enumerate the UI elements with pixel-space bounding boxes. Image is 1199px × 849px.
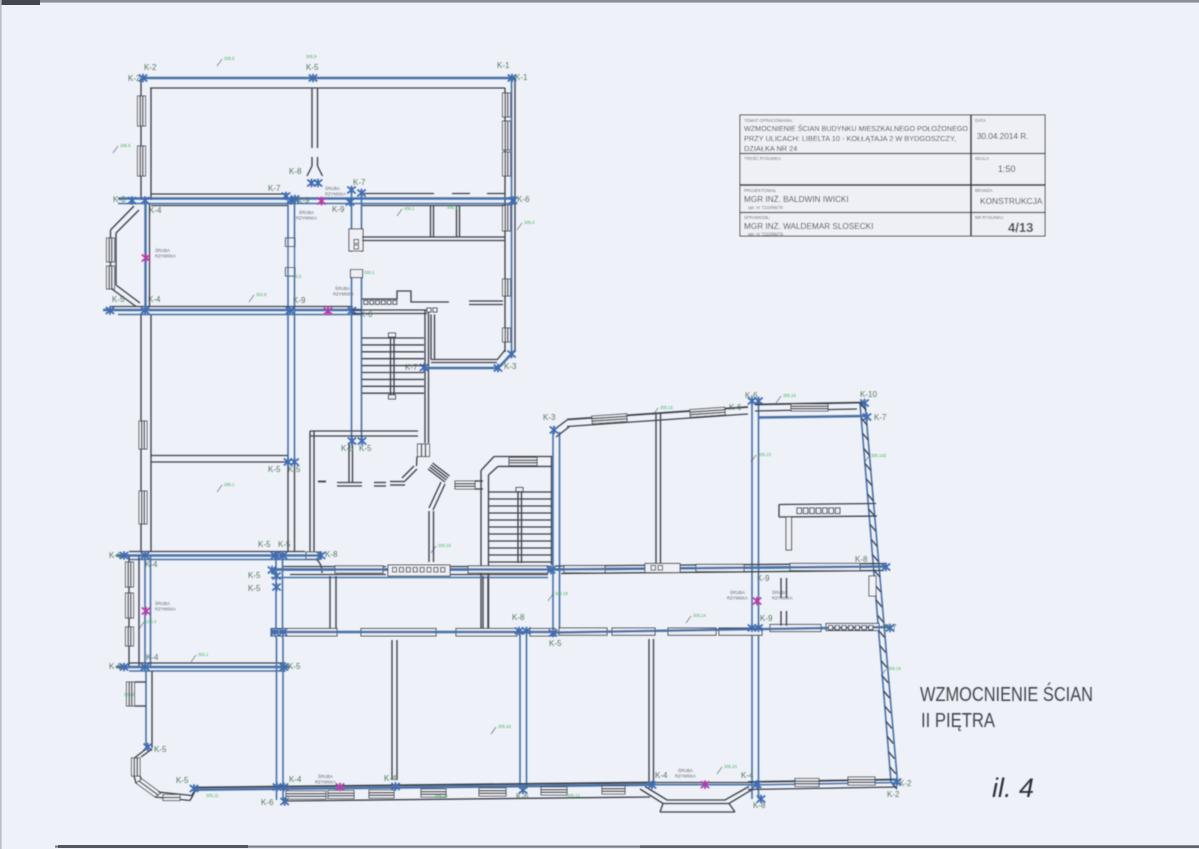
svg-text:K-1: K-1 bbox=[497, 61, 510, 70]
svg-text:ŚRUBA: ŚRUBA bbox=[299, 210, 314, 215]
svg-text:K-5: K-5 bbox=[359, 444, 372, 453]
svg-text:305.16: 305.16 bbox=[783, 393, 796, 398]
svg-text:K-5: K-5 bbox=[278, 540, 291, 549]
svg-text:K-7: K-7 bbox=[884, 623, 897, 632]
svg-text:K-1: K-1 bbox=[515, 73, 528, 82]
svg-text:ŚRUBA: ŚRUBA bbox=[318, 774, 333, 779]
svg-text:305.5: 305.5 bbox=[224, 56, 235, 61]
svg-text:KONSTRUKCJA: KONSTRUKCJA bbox=[980, 196, 1043, 206]
svg-text:305.14: 305.14 bbox=[693, 613, 706, 618]
svg-text:K-9: K-9 bbox=[332, 205, 345, 214]
svg-text:305.15: 305.15 bbox=[660, 405, 673, 410]
svg-text:K-4: K-4 bbox=[145, 560, 158, 569]
svg-text:K-4: K-4 bbox=[289, 775, 302, 784]
svg-text:K-6: K-6 bbox=[109, 551, 122, 560]
svg-text:upr. nr 7210/66/76: upr. nr 7210/66/76 bbox=[748, 232, 783, 237]
svg-text:SPRAWDZIŁ:: SPRAWDZIŁ: bbox=[744, 215, 770, 220]
svg-text:ŚRUBA: ŚRUBA bbox=[772, 590, 787, 595]
svg-text:RZYMSKA: RZYMSKA bbox=[333, 292, 354, 297]
svg-text:II PIĘTRA: II PIĘTRA bbox=[921, 710, 996, 732]
svg-text:K-5: K-5 bbox=[306, 63, 319, 72]
svg-text:ŚRUBA: ŚRUBA bbox=[155, 248, 170, 253]
svg-text:K-7: K-7 bbox=[268, 184, 281, 193]
svg-text:RZYMSKA: RZYMSKA bbox=[675, 774, 696, 779]
svg-text:305.19: 305.19 bbox=[888, 666, 901, 671]
svg-text:TEMAT OPRACOWANIA:: TEMAT OPRACOWANIA: bbox=[744, 118, 793, 123]
svg-text:DZIAŁKA NR 24: DZIAŁKA NR 24 bbox=[744, 144, 797, 153]
svg-text:K-5: K-5 bbox=[288, 662, 301, 671]
svg-text:305.23: 305.23 bbox=[724, 764, 737, 769]
svg-text:ŚRUBA: ŚRUBA bbox=[325, 186, 340, 191]
svg-text:1:50: 1:50 bbox=[998, 164, 1016, 174]
svg-text:WZMOCNIENIE ŚCIAN: WZMOCNIENIE ŚCIAN bbox=[920, 682, 1093, 706]
svg-text:K-4: K-4 bbox=[384, 774, 397, 783]
svg-text:TREŚĆ RYSUNKU: TREŚĆ RYSUNKU bbox=[744, 156, 781, 161]
svg-text:RZYMSKA: RZYMSKA bbox=[727, 596, 748, 601]
svg-text:RZYMSKA: RZYMSKA bbox=[296, 216, 317, 221]
svg-text:ŚRUBA: ŚRUBA bbox=[678, 768, 693, 773]
svg-text:K-5: K-5 bbox=[248, 571, 261, 580]
svg-text:K-2: K-2 bbox=[887, 790, 900, 799]
svg-text:286.2: 286.2 bbox=[124, 692, 135, 697]
svg-text:K-2: K-2 bbox=[144, 63, 157, 72]
svg-text:4/13: 4/13 bbox=[1008, 220, 1033, 235]
svg-text:K-4: K-4 bbox=[655, 771, 668, 780]
svg-text:286.5: 286.5 bbox=[120, 143, 131, 148]
svg-text:K-5: K-5 bbox=[341, 444, 354, 453]
svg-text:K-5: K-5 bbox=[248, 584, 261, 593]
svg-text:K-8: K-8 bbox=[325, 550, 338, 559]
svg-text:K-6: K-6 bbox=[261, 798, 274, 807]
svg-text:195.2: 195.2 bbox=[146, 619, 157, 624]
svg-text:305.4: 305.4 bbox=[524, 220, 535, 225]
svg-text:ŚRUBA: ŚRUBA bbox=[730, 590, 745, 595]
svg-text:K-6: K-6 bbox=[109, 662, 122, 671]
svg-text:305.15: 305.15 bbox=[438, 543, 451, 548]
svg-text:il. 4: il. 4 bbox=[992, 773, 1034, 803]
svg-text:K-5: K-5 bbox=[268, 465, 281, 474]
svg-text:K-8: K-8 bbox=[855, 555, 868, 564]
svg-text:K-9: K-9 bbox=[757, 574, 770, 583]
svg-text:K-6: K-6 bbox=[517, 195, 530, 204]
svg-text:RZYMSKA: RZYMSKA bbox=[155, 254, 176, 259]
svg-text:K-3: K-3 bbox=[504, 362, 517, 371]
svg-text:K-9: K-9 bbox=[297, 196, 310, 205]
svg-text:305.142: 305.142 bbox=[871, 453, 887, 458]
svg-text:K-2: K-2 bbox=[899, 779, 912, 788]
svg-text:K-5: K-5 bbox=[154, 745, 167, 754]
svg-text:MGR INŻ. BALDWIN IWICKI: MGR INŻ. BALDWIN IWICKI bbox=[744, 194, 849, 204]
svg-text:305.1: 305.1 bbox=[364, 270, 375, 275]
svg-text:302.1: 302.1 bbox=[198, 652, 209, 657]
svg-text:K-7: K-7 bbox=[405, 363, 418, 372]
svg-text:PROJEKTOWAŁ: PROJEKTOWAŁ bbox=[744, 188, 777, 193]
svg-text:305.13: 305.13 bbox=[758, 452, 771, 457]
svg-text:K-6: K-6 bbox=[745, 391, 758, 400]
svg-text:36.5: 36.5 bbox=[293, 274, 302, 279]
svg-text:BRANŻA: BRANŻA bbox=[975, 188, 993, 193]
svg-text:PRZY ULICACH: LIBELTA 10 - KOŁ: PRZY ULICACH: LIBELTA 10 - KOŁŁĄTAJA 2 W… bbox=[744, 134, 956, 143]
svg-text:K-7: K-7 bbox=[874, 413, 887, 422]
svg-text:K-5: K-5 bbox=[288, 465, 301, 474]
svg-text:30.04.2014 R.: 30.04.2014 R. bbox=[977, 132, 1028, 141]
svg-text:K-6: K-6 bbox=[516, 792, 529, 801]
svg-text:302.8: 302.8 bbox=[256, 292, 267, 297]
svg-text:K-4: K-4 bbox=[741, 771, 754, 780]
svg-text:305.12: 305.12 bbox=[567, 793, 580, 798]
svg-text:K-7: K-7 bbox=[353, 178, 366, 187]
svg-text:K-6: K-6 bbox=[113, 195, 126, 204]
svg-text:NR RYSUNKU: NR RYSUNKU bbox=[975, 215, 1003, 220]
svg-text:K-6: K-6 bbox=[360, 310, 373, 319]
svg-text:K-3: K-3 bbox=[543, 413, 556, 422]
svg-text:406.1: 406.1 bbox=[404, 206, 415, 211]
svg-text:K-6: K-6 bbox=[729, 403, 742, 412]
svg-text:K-5: K-5 bbox=[258, 540, 271, 549]
svg-text:SKALA: SKALA bbox=[975, 156, 989, 161]
svg-text:286.1: 286.1 bbox=[224, 482, 235, 487]
svg-text:K-10: K-10 bbox=[860, 390, 877, 399]
svg-text:305.17: 305.17 bbox=[435, 794, 448, 799]
svg-text:305.9: 305.9 bbox=[306, 54, 317, 59]
svg-text:305.11: 305.11 bbox=[206, 793, 219, 798]
svg-text:ŚRUBA: ŚRUBA bbox=[335, 286, 350, 291]
svg-text:305.18: 305.18 bbox=[498, 724, 511, 729]
svg-text:K-8: K-8 bbox=[753, 801, 766, 810]
svg-text:K-8: K-8 bbox=[289, 167, 302, 176]
svg-text:K-4: K-4 bbox=[149, 206, 162, 215]
svg-text:DATA: DATA bbox=[975, 118, 986, 123]
svg-text:K-5: K-5 bbox=[549, 639, 562, 648]
svg-text:305.18: 305.18 bbox=[555, 591, 568, 596]
svg-text:WZMOCNIENIE ŚCIAN BUDYNKU MIES: WZMOCNIENIE ŚCIAN BUDYNKU MIESZKALNEGO P… bbox=[744, 124, 968, 133]
svg-text:ŚRUBA: ŚRUBA bbox=[155, 601, 170, 606]
svg-text:K-9: K-9 bbox=[760, 614, 773, 623]
svg-text:406.1: 406.1 bbox=[447, 205, 458, 210]
svg-text:K-5: K-5 bbox=[176, 776, 189, 785]
svg-text:RZYMSKA: RZYMSKA bbox=[325, 192, 346, 197]
svg-text:RZYMSKA: RZYMSKA bbox=[772, 596, 793, 601]
svg-text:upr. nr 7210/66/76: upr. nr 7210/66/76 bbox=[748, 205, 783, 210]
svg-text:K-8: K-8 bbox=[512, 613, 525, 622]
svg-text:K-9: K-9 bbox=[293, 296, 306, 305]
svg-text:MGR INŻ. WALDEMAR SLOSECKI: MGR INŻ. WALDEMAR SLOSECKI bbox=[744, 221, 873, 231]
svg-text:RZYMSKA: RZYMSKA bbox=[155, 607, 176, 612]
svg-text:RZYMSKA: RZYMSKA bbox=[315, 780, 336, 785]
svg-text:K-4: K-4 bbox=[146, 653, 159, 662]
